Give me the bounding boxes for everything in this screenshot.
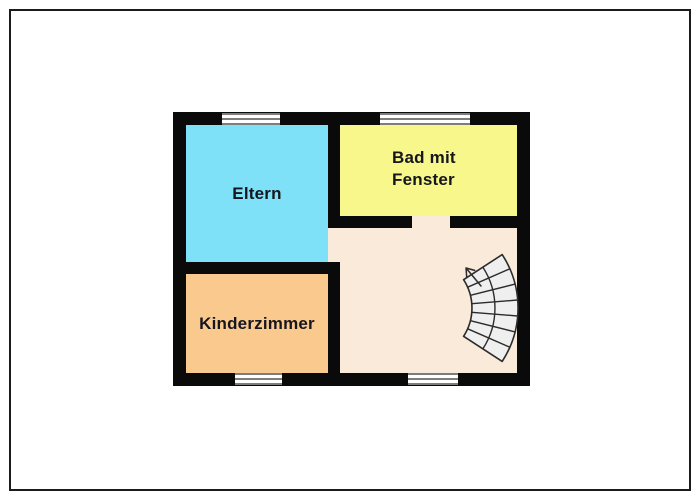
wall-kinderzimmer-hallway	[328, 262, 340, 373]
window-icon-eltern	[222, 113, 280, 125]
page: Eltern Bad mit Fenster Kinderzimmer	[0, 0, 700, 500]
room-eltern-label: Eltern	[232, 183, 281, 205]
window-icon-kinderzimmer	[235, 373, 282, 385]
floorplan: Eltern Bad mit Fenster Kinderzimmer	[173, 112, 530, 386]
window-icon-bad	[380, 113, 470, 125]
room-bad: Bad mit Fenster	[340, 125, 517, 216]
wall-eltern-bad	[328, 125, 340, 228]
room-kinderzimmer: Kinderzimmer	[186, 274, 328, 373]
room-kinderzimmer-label: Kinderzimmer	[199, 313, 315, 335]
room-eltern: Eltern	[186, 125, 328, 262]
room-bad-label: Bad mit Fenster	[392, 147, 474, 191]
window-icon-hallway	[408, 373, 458, 385]
wall-eltern-kinderzimmer	[173, 262, 340, 274]
staircase-icon	[450, 248, 520, 366]
wall-bad-hallway-left	[328, 216, 412, 228]
wall-bad-hallway-right	[450, 216, 517, 228]
